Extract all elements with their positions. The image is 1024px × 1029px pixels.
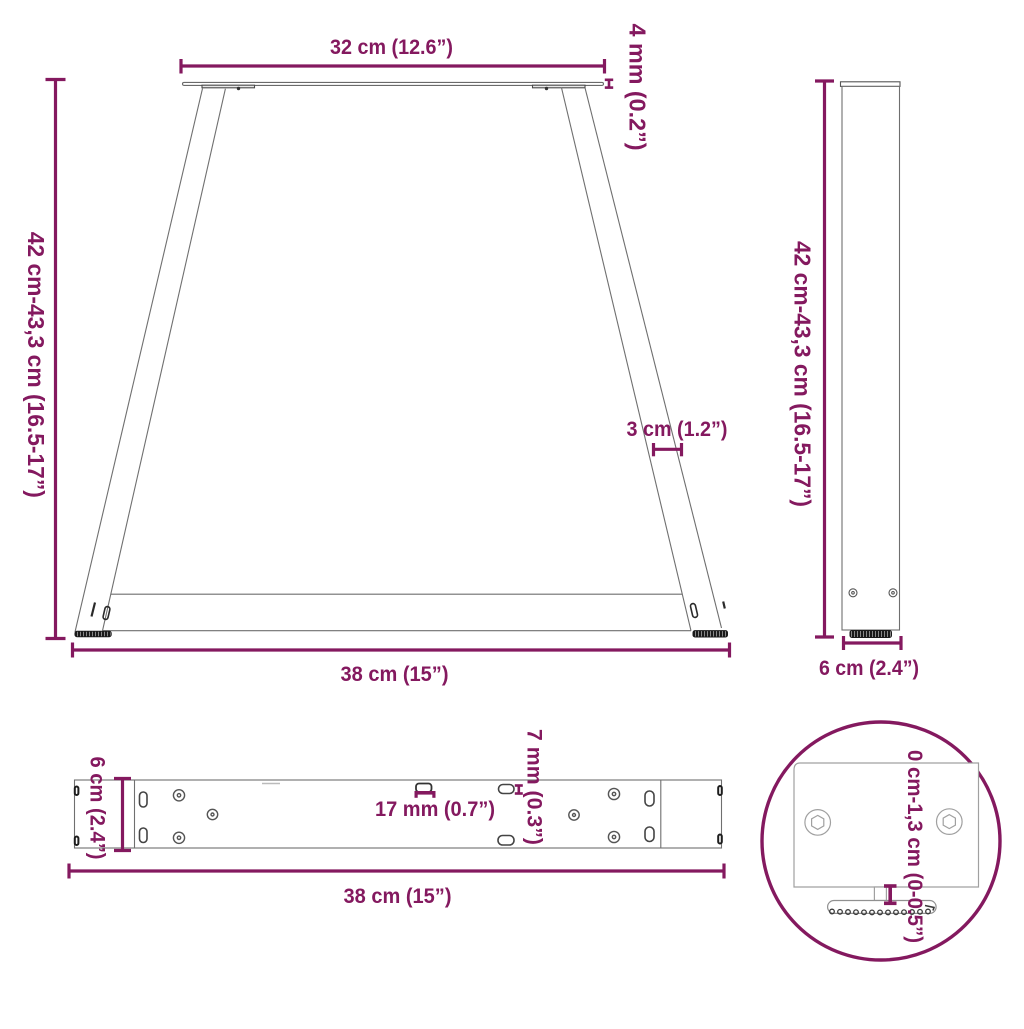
svg-text:17 mm (0.7”): 17 mm (0.7”) xyxy=(375,797,495,821)
svg-text:3 cm (1.2”): 3 cm (1.2”) xyxy=(627,417,728,441)
svg-text:0 cm-1,3 cm (0-0.5”): 0 cm-1,3 cm (0-0.5”) xyxy=(903,750,927,943)
svg-text:6 cm (2.4”): 6 cm (2.4”) xyxy=(819,656,919,680)
svg-text:6 cm (2.4”): 6 cm (2.4”) xyxy=(86,757,110,860)
svg-text:38 cm (15”): 38 cm (15”) xyxy=(341,662,449,686)
svg-text:32 cm (12.6”): 32 cm (12.6”) xyxy=(330,35,453,59)
svg-text:42 cm-43,3 cm (16.5-17”): 42 cm-43,3 cm (16.5-17”) xyxy=(23,232,49,498)
svg-text:42 cm-43,3 cm (16.5-17”): 42 cm-43,3 cm (16.5-17”) xyxy=(790,241,816,507)
svg-text:7 mm (0.3”): 7 mm (0.3”) xyxy=(523,729,547,845)
svg-text:4 mm (0.2”): 4 mm (0.2”) xyxy=(625,24,651,151)
svg-text:38 cm (15”): 38 cm (15”) xyxy=(344,884,452,908)
